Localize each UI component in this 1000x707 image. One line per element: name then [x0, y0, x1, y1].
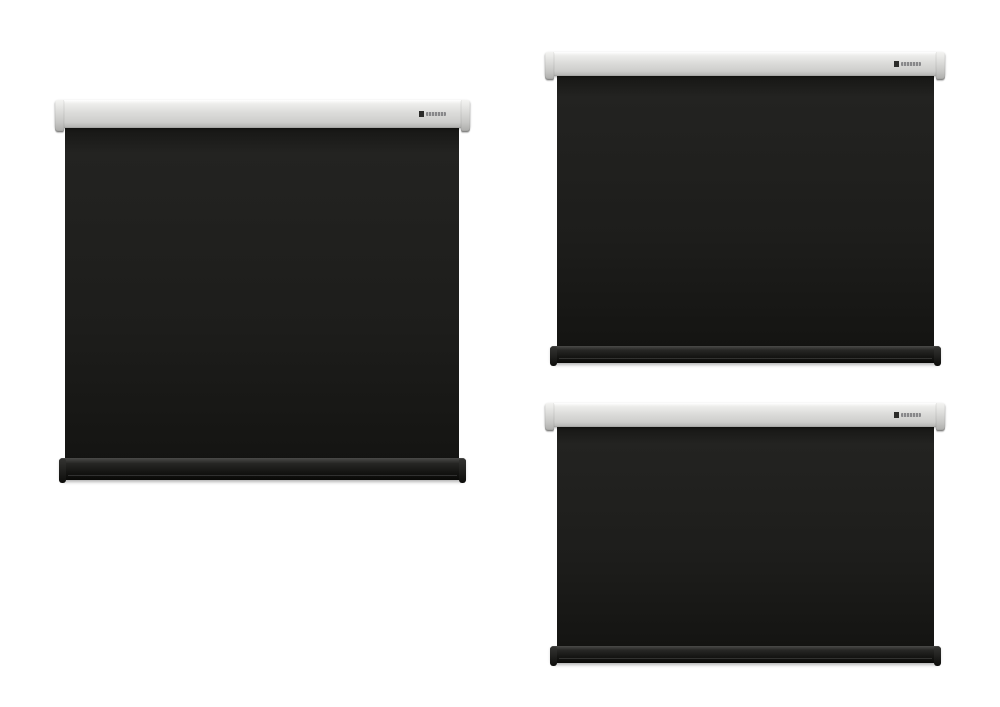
weight-bar-endcap-left-icon — [550, 347, 557, 366]
weight-bar-groove — [559, 658, 932, 659]
brand-logo-square-icon — [894, 412, 899, 418]
product-photo-stage: 1:1 4:3 — [0, 0, 1000, 707]
brand-logo-text-icon — [901, 413, 921, 417]
weight-bar-endcap-right-icon — [459, 459, 466, 483]
weight-bar — [60, 458, 465, 480]
brand-logo-icon — [894, 61, 921, 67]
weight-bar — [551, 346, 940, 363]
weight-bar-endcap-left-icon — [59, 459, 66, 483]
screen-black-border — [557, 75, 934, 349]
projector-screen-1-1: 1:1 — [55, 100, 470, 482]
brand-logo-icon — [419, 111, 446, 117]
weight-bar-groove — [559, 358, 932, 359]
housing-endcap-left-icon — [545, 52, 554, 80]
screen-housing — [55, 100, 470, 128]
screen-housing — [545, 403, 945, 427]
screen-black-border — [557, 426, 934, 648]
housing-endcap-left-icon — [55, 100, 64, 132]
screen-black-border — [65, 126, 459, 464]
weight-bar — [551, 646, 940, 663]
brand-logo-square-icon — [894, 61, 899, 67]
weight-bar-groove — [68, 475, 457, 476]
weight-bar-endcap-left-icon — [550, 647, 557, 666]
brand-logo-text-icon — [901, 62, 921, 66]
housing-endcap-right-icon — [936, 403, 945, 431]
weight-bar-endcap-right-icon — [934, 347, 941, 366]
weight-bar-endcap-right-icon — [934, 647, 941, 666]
screen-housing — [545, 52, 945, 76]
housing-endcap-right-icon — [461, 100, 470, 132]
brand-logo-square-icon — [419, 111, 424, 117]
brand-logo-text-icon — [426, 112, 446, 116]
projector-screen-16-9: 16:9 — [545, 403, 945, 663]
projector-screen-4-3: 4:3 — [545, 52, 945, 363]
housing-endcap-left-icon — [545, 403, 554, 431]
brand-logo-icon — [894, 412, 921, 418]
housing-endcap-right-icon — [936, 52, 945, 80]
